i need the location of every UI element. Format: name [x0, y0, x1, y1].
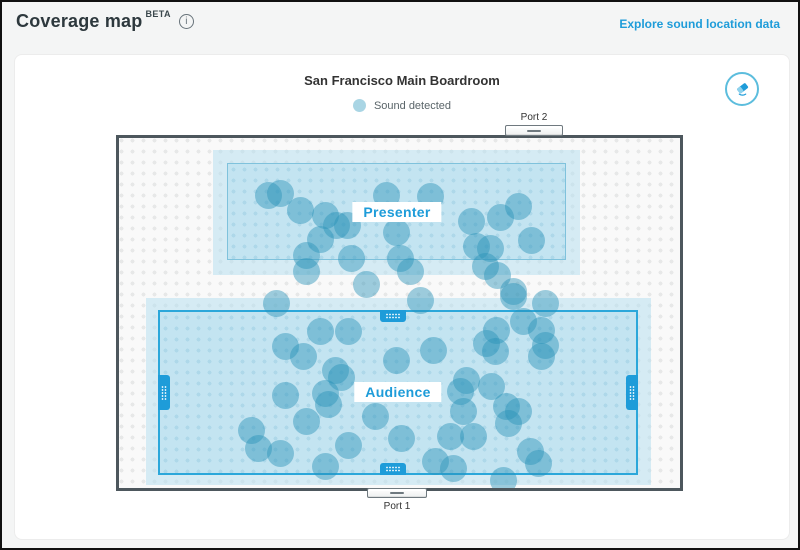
sound-dot — [383, 347, 410, 374]
sound-dot — [407, 287, 434, 314]
sound-dot — [440, 455, 467, 482]
coverage-map-screen: Coverage map BETA i Explore sound locati… — [0, 0, 800, 550]
page-header: Coverage map BETA i — [16, 11, 194, 32]
eraser-icon — [734, 81, 751, 98]
port-2-device-icon — [505, 125, 563, 136]
sound-dot — [397, 258, 424, 285]
sound-dot — [518, 227, 545, 254]
sound-dot — [267, 440, 294, 467]
sound-dot — [482, 338, 509, 365]
sound-dot — [495, 410, 522, 437]
beta-badge: BETA — [145, 9, 170, 19]
sound-dot — [528, 343, 555, 370]
sound-dot — [525, 450, 552, 477]
port-2-label: Port 2 — [521, 112, 548, 123]
sound-dot — [335, 318, 362, 345]
sound-dot — [383, 219, 410, 246]
sound-detected-swatch — [353, 99, 366, 112]
room-map: Presenter Audience Port 2 Port 1 — [116, 135, 683, 491]
legend-label: Sound detected — [374, 100, 451, 112]
legend: Sound detected — [15, 99, 789, 112]
sound-dot — [338, 245, 365, 272]
sound-dot — [293, 408, 320, 435]
port-1-label: Port 1 — [384, 501, 411, 512]
info-icon[interactable]: i — [179, 14, 194, 29]
sound-dot — [315, 391, 342, 418]
page-title: Coverage map — [16, 11, 142, 32]
sound-dot — [388, 425, 415, 452]
sound-dot — [312, 453, 339, 480]
mic-array-icon-right — [626, 375, 638, 410]
sound-dot — [272, 382, 299, 409]
sound-dot — [293, 258, 320, 285]
sound-dot — [335, 432, 362, 459]
sound-dot — [263, 290, 290, 317]
audience-zone-label: Audience — [354, 382, 441, 402]
sound-dot — [490, 467, 517, 492]
mic-array-icon-left — [158, 375, 170, 410]
sound-dot — [290, 343, 317, 370]
sound-dot — [500, 283, 527, 310]
sound-dot — [420, 337, 447, 364]
sound-dot — [505, 193, 532, 220]
presenter-zone-label: Presenter — [352, 202, 441, 222]
sound-dot — [460, 423, 487, 450]
sound-dot — [362, 403, 389, 430]
sound-dot — [353, 271, 380, 298]
port-1-device-icon — [367, 488, 427, 498]
coverage-map-card: San Francisco Main Boardroom Sound detec… — [14, 54, 790, 540]
room-name-title: San Francisco Main Boardroom — [15, 73, 789, 88]
sound-dot — [450, 398, 477, 425]
mic-array-icon-top — [380, 310, 406, 322]
sound-dot — [458, 208, 485, 235]
eraser-button[interactable] — [725, 72, 759, 106]
explore-sound-location-link[interactable]: Explore sound location data — [619, 17, 780, 31]
sound-dot — [307, 318, 334, 345]
sound-dot — [532, 290, 559, 317]
sound-dot — [287, 197, 314, 224]
mic-array-icon-bottom — [380, 463, 406, 475]
